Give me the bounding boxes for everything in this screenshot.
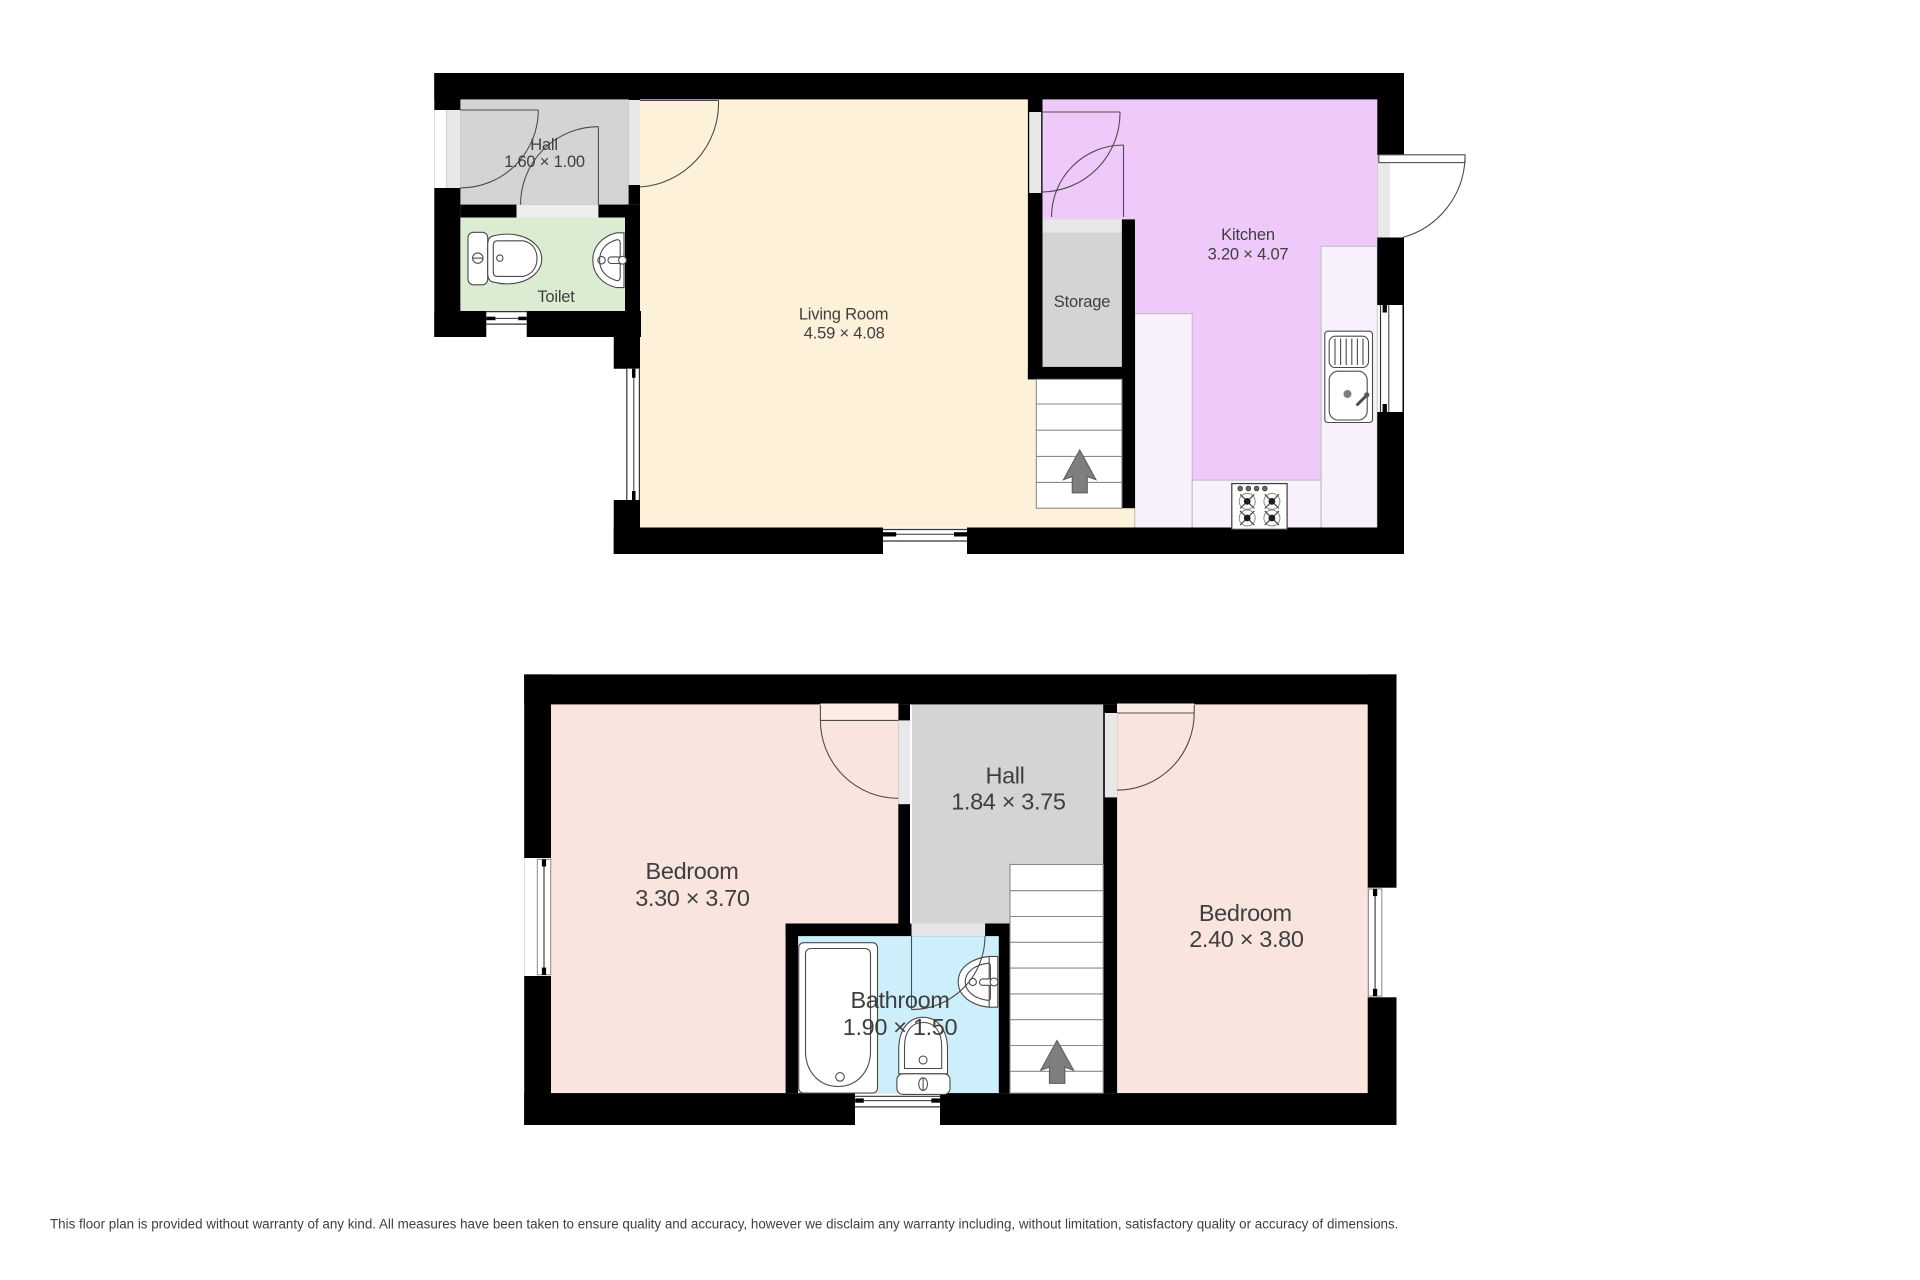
svg-text:Hall: Hall [530, 136, 558, 154]
svg-text:Toilet: Toilet [537, 288, 575, 306]
svg-text:Living Room: Living Room [799, 305, 889, 323]
svg-text:4.59 × 4.08: 4.59 × 4.08 [804, 325, 885, 343]
svg-text:Bedroom: Bedroom [646, 858, 739, 884]
svg-text:Storage: Storage [1054, 293, 1110, 311]
svg-text:1.90 × 1.50: 1.90 × 1.50 [843, 1014, 958, 1040]
svg-text:3.30 × 3.70: 3.30 × 3.70 [635, 885, 750, 911]
svg-text:Hall: Hall [985, 762, 1024, 788]
svg-text:Kitchen: Kitchen [1221, 226, 1275, 244]
svg-text:2.40 × 3.80: 2.40 × 3.80 [1189, 926, 1304, 952]
svg-text:1.84 × 3.75: 1.84 × 3.75 [951, 788, 1066, 814]
svg-text:Bathroom: Bathroom [850, 987, 949, 1013]
svg-text:Bedroom: Bedroom [1199, 900, 1292, 926]
svg-text:1.60 × 1.00: 1.60 × 1.00 [504, 153, 585, 171]
svg-text:This floor plan is provided wi: This floor plan is provided without warr… [50, 1217, 1398, 1232]
svg-text:3.20 × 4.07: 3.20 × 4.07 [1208, 246, 1289, 264]
